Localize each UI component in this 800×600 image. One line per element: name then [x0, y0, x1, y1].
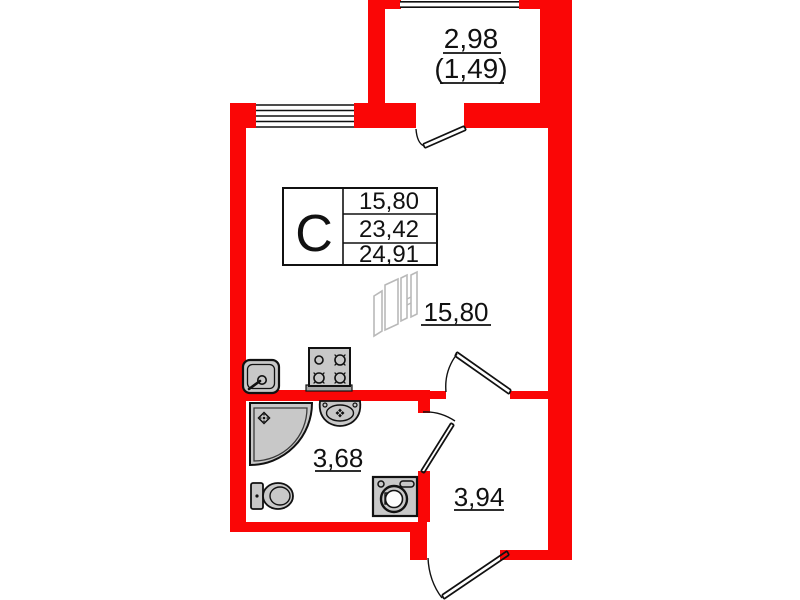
- balcony-area-label: 2,98: [444, 23, 499, 54]
- wall-bathroom-bottom: [230, 522, 427, 532]
- wall-balcony-top-left: [368, 0, 401, 9]
- wall-bathroom-right-top: [418, 401, 430, 413]
- window-living: [256, 104, 354, 127]
- table-row-apartment: 23,42: [359, 216, 419, 243]
- door-entrance: [428, 551, 509, 599]
- wall-entry-left-jamb: [410, 532, 427, 560]
- area-summary-table: С 15,80 23,42 24,91: [283, 188, 437, 268]
- wall-bathroom-right-bottom: [418, 471, 430, 522]
- table-row-living: 15,80: [359, 188, 419, 215]
- door-bathroom: [421, 412, 455, 473]
- wall-balcony-right: [540, 0, 572, 120]
- toilet-icon: [251, 483, 293, 509]
- wall-top-b: [354, 103, 416, 128]
- kitchen-sink-icon: [243, 360, 279, 393]
- wall-balcony-left: [368, 0, 385, 103]
- door-balcony: [416, 126, 466, 148]
- window-balcony: [400, 1, 519, 8]
- wardrobe-icon: [374, 272, 417, 336]
- table-row-total: 24,91: [359, 241, 419, 268]
- wall-top-c: [464, 103, 548, 128]
- door-living-hall: [446, 352, 511, 394]
- washing-machine-icon: [373, 477, 417, 516]
- wall-right: [548, 103, 572, 560]
- wall-left: [230, 103, 246, 532]
- shower-icon: [250, 403, 312, 465]
- bathroom-sink-icon: [320, 401, 361, 426]
- wall-hall-bottom: [500, 550, 572, 560]
- floor-plan-svg: С 15,80 23,42 24,91 2,98 (1,49) 15,80 3,…: [0, 0, 800, 600]
- apartment-type-label: С: [295, 205, 333, 263]
- living-area-label: 15,80: [423, 297, 488, 327]
- balcony-area-counted-label: (1,49): [434, 53, 507, 84]
- floor-plan-page: С 15,80 23,42 24,91 2,98 (1,49) 15,80 3,…: [0, 0, 800, 600]
- wall-hall-door-right: [510, 391, 548, 399]
- bathroom-area-label: 3,68: [313, 443, 364, 473]
- wall-hall-door-left-jamb: [430, 391, 446, 399]
- hallway-area-label: 3,94: [454, 482, 505, 512]
- stove-icon: [306, 348, 352, 391]
